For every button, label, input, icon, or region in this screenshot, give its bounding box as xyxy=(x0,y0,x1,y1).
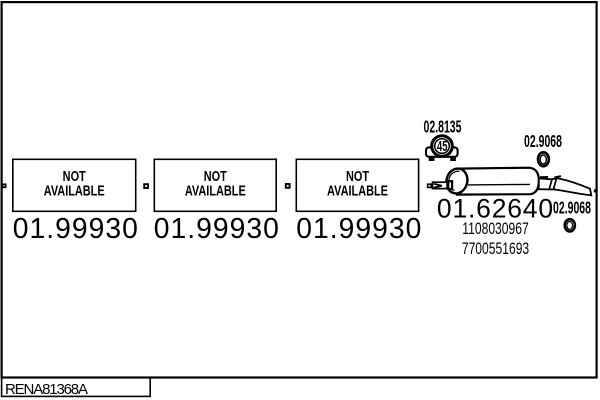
svg-text:45: 45 xyxy=(437,138,447,155)
svg-text:AVAILABLE: AVAILABLE xyxy=(44,182,105,199)
svg-text:01.62640: 01.62640 xyxy=(437,193,554,223)
svg-text:01.99930: 01.99930 xyxy=(296,212,422,244)
svg-text:AVAILABLE: AVAILABLE xyxy=(327,182,388,199)
svg-text:02.9068: 02.9068 xyxy=(553,199,591,218)
svg-text:1108030967: 1108030967 xyxy=(462,220,528,238)
svg-text:01.99930: 01.99930 xyxy=(13,212,139,244)
svg-text:RENA81368A: RENA81368A xyxy=(5,381,88,398)
svg-text:AVAILABLE: AVAILABLE xyxy=(185,182,246,199)
svg-text:7700551693: 7700551693 xyxy=(462,240,529,258)
svg-text:02.9068: 02.9068 xyxy=(524,132,562,151)
svg-text:01.99930: 01.99930 xyxy=(154,212,280,244)
